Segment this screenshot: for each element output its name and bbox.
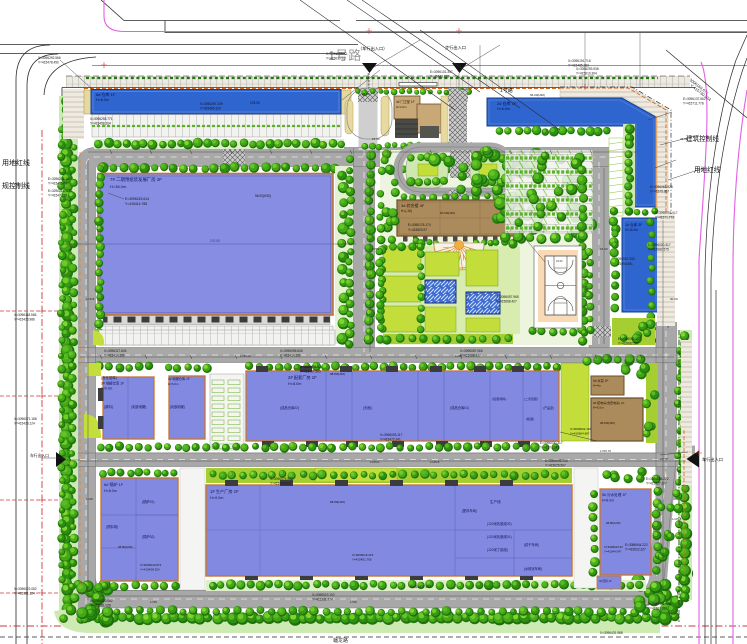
svg-text:车行出入口: 车行出入口 [30,453,49,458]
svg-text:X=3096093.017: X=3096093.017 [655,211,678,215]
svg-text:98.80(H30): 98.80(H30) [330,500,345,504]
svg-text:(产品室): (产品室) [543,405,554,410]
svg-text:H=8.0m: H=8.0m [288,382,301,386]
svg-text:X=3096193.02: X=3096193.02 [326,52,347,56]
svg-text:(包装材料): (包装材料) [492,396,506,401]
svg-text:Y=415414.765: Y=415414.765 [125,202,147,206]
svg-text:98.80(H30): 98.80(H30) [118,545,132,549]
svg-text:L=50: L=50 [350,600,357,604]
svg-text:98.80(H30): 98.80(H30) [600,421,615,425]
svg-text:60.60(H30): 60.60(H30) [440,211,455,215]
svg-text:Y=41560.388: Y=41560.388 [648,607,667,611]
svg-text:X=3096043.62: X=3096043.62 [604,545,623,549]
svg-text:(成品仓库02): (成品仓库02) [280,405,299,410]
svg-text:E=3096020.317: E=3096020.317 [648,243,671,247]
svg-text:L=25.0: L=25.0 [370,460,380,464]
svg-text:98.80(H30): 98.80(H30) [606,521,620,525]
svg-text:L=315: L=315 [86,297,95,301]
svg-text:L=25.8: L=25.8 [430,460,440,464]
svg-text:X=3096002.118: X=3096002.118 [570,427,591,431]
svg-text:Y=415625.507: Y=415625.507 [545,464,566,468]
svg-text:H=4m: H=4m [593,384,602,388]
svg-text:车行出入口: 车行出入口 [702,456,723,463]
svg-text:3# 综合楼 4F: 3# 综合楼 4F [401,202,425,208]
svg-text:E=3096236.162: E=3096236.162 [48,177,71,181]
svg-text:用地红线: 用地红线 [694,165,721,174]
svg-text:E=3096094.222: E=3096094.222 [646,477,669,481]
svg-text:8# 仓库 1F: 8# 仓库 1F [96,91,116,97]
svg-text:建筑控制线: 建筑控制线 [686,134,719,143]
svg-text:3# 地罐仓库 1F: 3# 地罐仓库 1F [101,381,124,386]
svg-text:96.00(H30): 96.00(H30) [530,93,545,97]
svg-text:6# 锅炉 1F: 6# 锅炉 1F [104,481,124,487]
svg-text:98.83(H30): 98.83(H30) [330,372,345,376]
svg-text:H=6.0m: H=6.0m [497,107,510,111]
svg-text:5# 污水处理 1F: 5# 污水处理 1F [602,492,627,497]
svg-text:Y=415426.986: Y=415426.986 [14,318,35,322]
svg-text:4# 地罐仓库 1F: 4# 地罐仓库 1F [168,376,190,381]
svg-text:E=3096176.174: E=3096176.174 [408,223,431,227]
svg-text:E=3290218.118: E=3290218.118 [48,189,71,193]
svg-text:(水硫化车间): (水硫化车间) [524,566,542,571]
svg-text:X=3096019.874: X=3096019.874 [140,563,162,567]
svg-text:Y=415381.774: Y=415381.774 [312,598,333,602]
svg-text:Y=41571.773: Y=41571.773 [655,216,674,220]
svg-text:(二次包装): (二次包装) [524,396,538,401]
svg-text:H=36.0m: H=36.0m [110,184,127,189]
svg-text:(乳胶地罐): (乳胶地罐) [131,404,146,409]
svg-text:E=3096030.317: E=3096030.317 [540,441,563,445]
svg-text:Y=41575.957: Y=41575.957 [650,190,669,194]
svg-text:2# 仓库 1F: 2# 仓库 1F [497,100,517,106]
svg-text:Y=415417.507: Y=415417.507 [410,585,431,589]
svg-text:用地红线: 用地红线 [2,158,30,167]
svg-text:15.00: 15.00 [556,259,563,263]
svg-text:Y=415610.304: Y=415610.304 [576,72,597,76]
svg-text:E=3096137.562: E=3096137.562 [683,97,706,101]
svg-text:X=3096022.082: X=3096022.082 [14,587,37,591]
svg-text:Y=415465.320: Y=415465.320 [200,107,221,111]
svg-text:Y=415630.92: Y=415630.92 [326,57,345,61]
svg-text:Y=415627.207: Y=415627.207 [646,482,667,486]
svg-text:L=25: L=25 [86,497,93,501]
svg-text:E=3086944.222: E=3086944.222 [625,543,648,547]
svg-text:(天面): (天面) [363,406,372,410]
svg-text:H=6.0m: H=6.0m [96,98,109,102]
svg-text:X=2096020.082: X=2096020.082 [90,599,113,603]
svg-text:Y=415451.765: Y=415451.765 [352,558,372,562]
svg-text:Y=415381.124: Y=415381.124 [14,592,35,596]
svg-text:L=35.00: L=35.00 [240,354,251,358]
svg-text:(成品仓库01): (成品仓库01) [450,405,469,410]
svg-text:H=5.5m: H=5.5m [593,406,604,410]
svg-text:X=3096117.843: X=3096117.843 [104,349,127,353]
svg-text:(检验): (检验) [526,416,534,421]
svg-text:X=3096076.523: X=3096076.523 [270,477,293,481]
svg-text:Y=415381.028: Y=415381.028 [90,604,111,608]
svg-text:Y=41648.288: Y=41648.288 [430,75,449,79]
svg-text:Y=415664.687: Y=415664.687 [570,432,590,436]
svg-text:Y=415682.5/5: Y=415682.5/5 [618,342,638,346]
svg-text:Y=415438.523: Y=415438.523 [270,482,291,486]
svg-text:X=3096431.988: X=3096431.988 [600,631,623,635]
svg-text:（车行出入口）: （车行出入口） [358,45,387,52]
svg-text:(危化品库): (危化品库) [101,375,117,380]
svg-text:H=9.0m: H=9.0m [210,496,223,500]
svg-text:H=16.2m: H=16.2m [625,228,638,232]
svg-text:Y=41544.547: Y=41544.547 [604,550,622,554]
svg-text:X=3096057.965: X=3096057.965 [496,295,519,299]
svg-text:Y=415415.047: Y=415415.047 [48,182,69,186]
svg-text:Y=415438.324: Y=415438.324 [140,568,160,572]
svg-text:生产线: 生产线 [490,499,501,504]
svg-text:(燃料场): (燃料场) [106,524,118,529]
svg-text:t=0.00: t=0.00 [660,457,669,461]
svg-text:L=50.70: L=50.70 [600,449,611,453]
svg-text:6# 配电房(含套电房) 1F: 6# 配电房(含套电房) 1F [593,400,625,405]
svg-text:X=3096292.566: X=3096292.566 [38,56,61,60]
svg-text:0# 水泵 1F: 0# 水泵 1F [593,378,608,383]
svg-text:X=3096071.188: X=3096071.188 [14,417,37,421]
svg-text:Y=415472.341: Y=415472.341 [380,438,401,442]
svg-text:H=8.0m: H=8.0m [104,489,117,493]
svg-text:(锅炉02): (锅炉02) [142,534,154,539]
svg-text:(乳胶地罐): (乳胶地罐) [170,404,185,409]
svg-text:96.00(H30): 96.00(H30) [255,194,271,198]
svg-text:0# 回转 1F: 0# 回转 1F [599,579,612,583]
svg-text:X=3096095.845: X=3096095.845 [280,349,303,353]
svg-text:E=3096215.614: E=3096215.614 [125,197,149,201]
svg-text:Y=415428.124: Y=415428.124 [14,422,35,426]
svg-text:H=4.0m: H=4.0m [396,105,407,109]
svg-text:(原料): (原料) [104,404,113,409]
svg-text:Y=415?.2341: Y=415?.2341 [540,446,559,450]
svg-text:X=3096003.117: X=3096003.117 [380,433,403,437]
svg-text:蟠龙路: 蟠龙路 [333,637,348,644]
svg-text:1# 仓库 3F: 1# 仓库 3F [625,222,643,227]
svg-text:Y=415668.427: Y=415668.427 [496,300,517,304]
svg-text:(120米乳胶线02): (120米乳胶线02) [487,521,512,526]
svg-text:L=35: L=35 [150,600,157,604]
svg-text:L=50: L=50 [372,247,379,251]
svg-text:1号路: 1号路 [500,87,513,94]
svg-text:4# 门卫室 1F: 4# 门卫室 1F [396,99,415,104]
svg-text:2# 配套厂房 1F: 2# 配套厂房 1F [288,374,317,381]
svg-text:30.00: 30.00 [670,297,678,301]
svg-text:(锅炉01): (锅炉01) [142,499,154,504]
svg-text:7# 二期预组装发展厂房 2F: 7# 二期预组装发展厂房 2F [110,176,162,183]
svg-text:170.00: 170.00 [210,239,220,243]
svg-text:H=(-16): H=(-16) [401,209,412,213]
svg-text:(120米丁腈线): (120米丁腈线) [487,547,508,552]
svg-text:X=3096019.215: X=3096019.215 [352,553,374,557]
svg-text:X=3096063.928: X=3096063.928 [650,185,673,189]
svg-text:L=25.8: L=25.8 [672,517,682,521]
svg-text:15.00: 15.00 [372,137,380,141]
svg-text:Y=415682.575: Y=415682.575 [648,248,669,252]
svg-text:X=3096087.965: X=3096087.965 [460,349,483,353]
svg-text:X=3096096.8-3: X=3096096.8-3 [300,365,322,369]
svg-text:1# 生产厂房 1F: 1# 生产厂房 1F [210,488,239,495]
svg-text:X=3096257.249: X=3096257.249 [200,102,223,106]
svg-text:Y=415478.450: Y=415478.450 [38,61,59,65]
svg-text:26.00: 26.00 [362,92,370,96]
svg-text:E=3096050.317: E=3096050.317 [618,337,641,341]
svg-text:Y=415622.327: Y=415622.327 [625,548,646,552]
svg-text:X=3096191.716: X=3096191.716 [568,59,591,63]
svg-text:E=3089431.988: E=3089431.988 [648,602,671,606]
svg-text:X=3096255.771: X=3096255.771 [90,117,113,121]
svg-text:178.00: 178.00 [250,101,260,105]
svg-text:H=8.0m: H=8.0m [602,499,614,503]
svg-text:X=3096019.102: X=3096019.102 [312,593,335,597]
svg-text:Y=415458.204: Y=415458.204 [90,122,111,126]
svg-text:28.00: 28.00 [584,288,588,295]
svg-text:Y=415503.97: Y=415503.97 [408,228,427,232]
svg-text:(配料车间): (配料车间) [462,508,477,513]
svg-text:规控制线: 规控制线 [2,181,30,190]
svg-text:Y=415711.778: Y=415711.778 [683,102,704,106]
svg-text:(120米乳胶线01): (120米乳胶线01) [487,534,512,539]
svg-text:Y=415417.505: Y=415417.505 [300,370,321,374]
svg-text:(烘干车间): (烘干车间) [524,542,539,547]
svg-text:H=6.0m: H=6.0m [168,382,179,386]
svg-text:Y=41547.236: Y=41547.236 [48,194,67,198]
svg-text:X=3096118.566: X=3096118.566 [14,313,37,317]
svg-text:X=3096293.936: X=3096293.936 [576,67,599,71]
